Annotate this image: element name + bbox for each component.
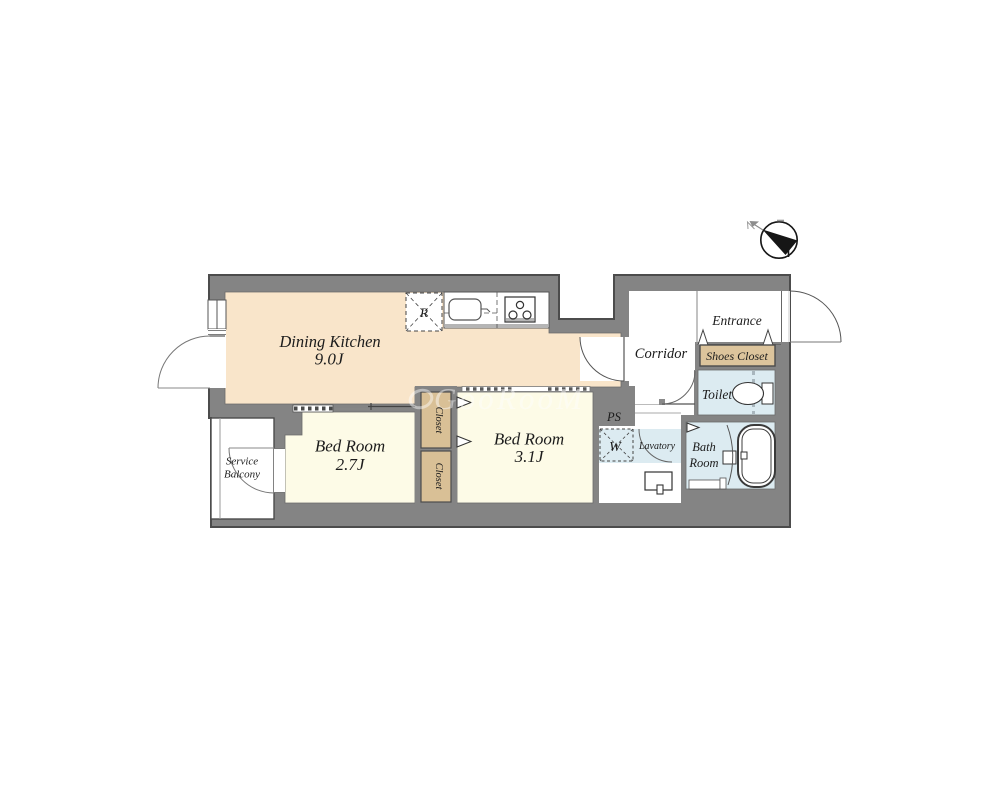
svg-text:Bath: Bath	[692, 440, 716, 454]
svg-text:Closet: Closet	[433, 407, 444, 435]
svg-text:2.7J: 2.7J	[336, 455, 366, 474]
svg-text:Shoes Closet: Shoes Closet	[706, 349, 768, 363]
svg-text:Dining Kitchen: Dining Kitchen	[278, 332, 380, 351]
svg-text:R: R	[419, 305, 428, 320]
svg-text:Balcony: Balcony	[224, 469, 260, 481]
svg-text:Toilet: Toilet	[702, 387, 734, 402]
svg-text:3.1J: 3.1J	[514, 447, 545, 466]
svg-text:Service: Service	[226, 456, 258, 468]
svg-text:PS: PS	[606, 410, 622, 424]
svg-text:Closet: Closet	[433, 463, 444, 491]
svg-text:Bed Room: Bed Room	[494, 430, 564, 449]
svg-text:Corridor: Corridor	[635, 346, 688, 362]
svg-text:Room: Room	[688, 456, 718, 470]
svg-text:Entrance: Entrance	[711, 313, 762, 328]
svg-text:W: W	[609, 440, 622, 455]
svg-text:Lavatory: Lavatory	[638, 441, 676, 452]
svg-text:Bed Room: Bed Room	[315, 437, 385, 456]
svg-text:9.0J: 9.0J	[315, 350, 345, 369]
